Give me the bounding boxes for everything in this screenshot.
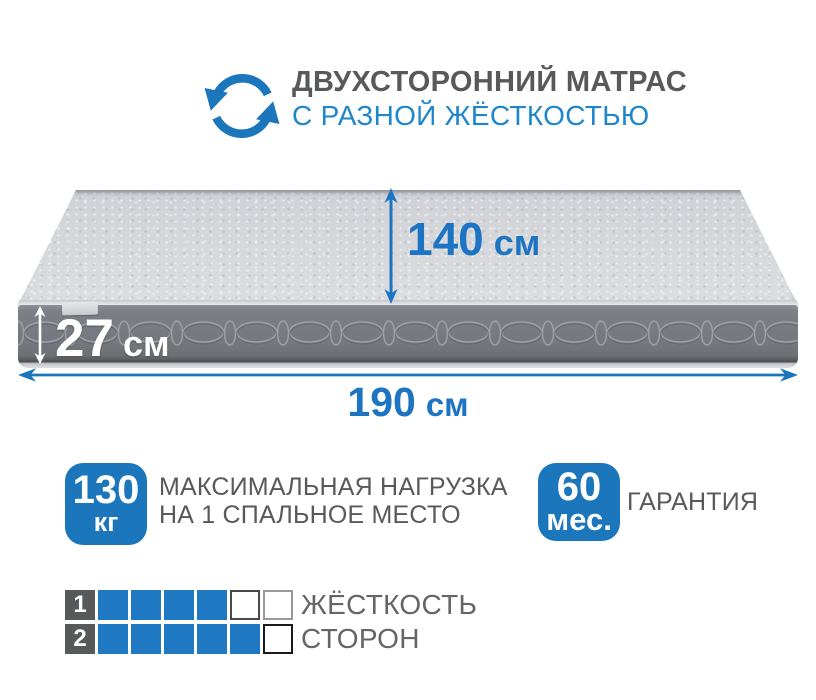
thickness-unit: см: [123, 323, 170, 365]
width-unit: см: [494, 222, 541, 264]
width-value: 140: [407, 212, 484, 266]
firmness-label-line1: ЖЁСТКОСТЬ: [301, 589, 477, 621]
width-dimension-label: 140 см: [407, 212, 540, 266]
firmness-cell-filled: [98, 590, 128, 620]
thickness-dimension-arrow: [31, 306, 49, 364]
firmness-cell-filled: [164, 590, 194, 620]
max-load-unit: кг: [94, 509, 119, 536]
firmness-cell-filled: [131, 590, 161, 620]
firmness-cell-empty: [263, 624, 293, 654]
length-unit: см: [426, 386, 469, 424]
firmness-row-number: 2: [65, 624, 95, 654]
warranty-value: 60: [557, 470, 602, 505]
thickness-dimension-label: 27 см: [55, 308, 170, 369]
firmness-cell-empty: [230, 590, 260, 620]
firmness-cell-filled: [98, 624, 128, 654]
warranty-unit: мес.: [546, 505, 612, 535]
firmness-row-side-1: 1: [65, 590, 293, 620]
rotate-arrows-icon: [203, 67, 281, 145]
max-load-badge: 130 кг: [65, 463, 147, 545]
page-subtitle: С РАЗНОЙ ЖЁСТКОСТЬЮ: [292, 100, 649, 132]
max-load-value: 130: [73, 472, 140, 509]
page-title: ДВУХСТОРОННИЙ МАТРАС: [292, 66, 687, 99]
firmness-cell-filled: [197, 624, 227, 654]
max-load-description: МАКСИМАЛЬНАЯ НАГРУЗКА НА 1 СПАЛЬНОЕ МЕСТ…: [159, 473, 508, 529]
firmness-label-line2: СТОРОН: [301, 623, 420, 655]
max-load-description-line2: НА 1 СПАЛЬНОЕ МЕСТО: [159, 501, 508, 529]
firmness-cell-filled: [131, 624, 161, 654]
firmness-cell-filled: [197, 590, 227, 620]
thickness-value: 27: [55, 308, 114, 369]
firmness-cell-filled: [164, 624, 194, 654]
firmness-cell-empty: [263, 590, 293, 620]
warranty-badge: 60 мес.: [538, 463, 620, 541]
firmness-row-side-2: 2: [65, 624, 293, 654]
length-value: 190: [347, 379, 415, 426]
warranty-label: ГАРАНТИЯ: [627, 488, 758, 517]
firmness-row-number: 1: [65, 590, 95, 620]
width-dimension-arrow: [382, 188, 400, 304]
max-load-description-line1: МАКСИМАЛЬНАЯ НАГРУЗКА: [159, 473, 508, 501]
length-dimension-label: 190 см: [0, 379, 816, 426]
firmness-cell-filled: [230, 624, 260, 654]
